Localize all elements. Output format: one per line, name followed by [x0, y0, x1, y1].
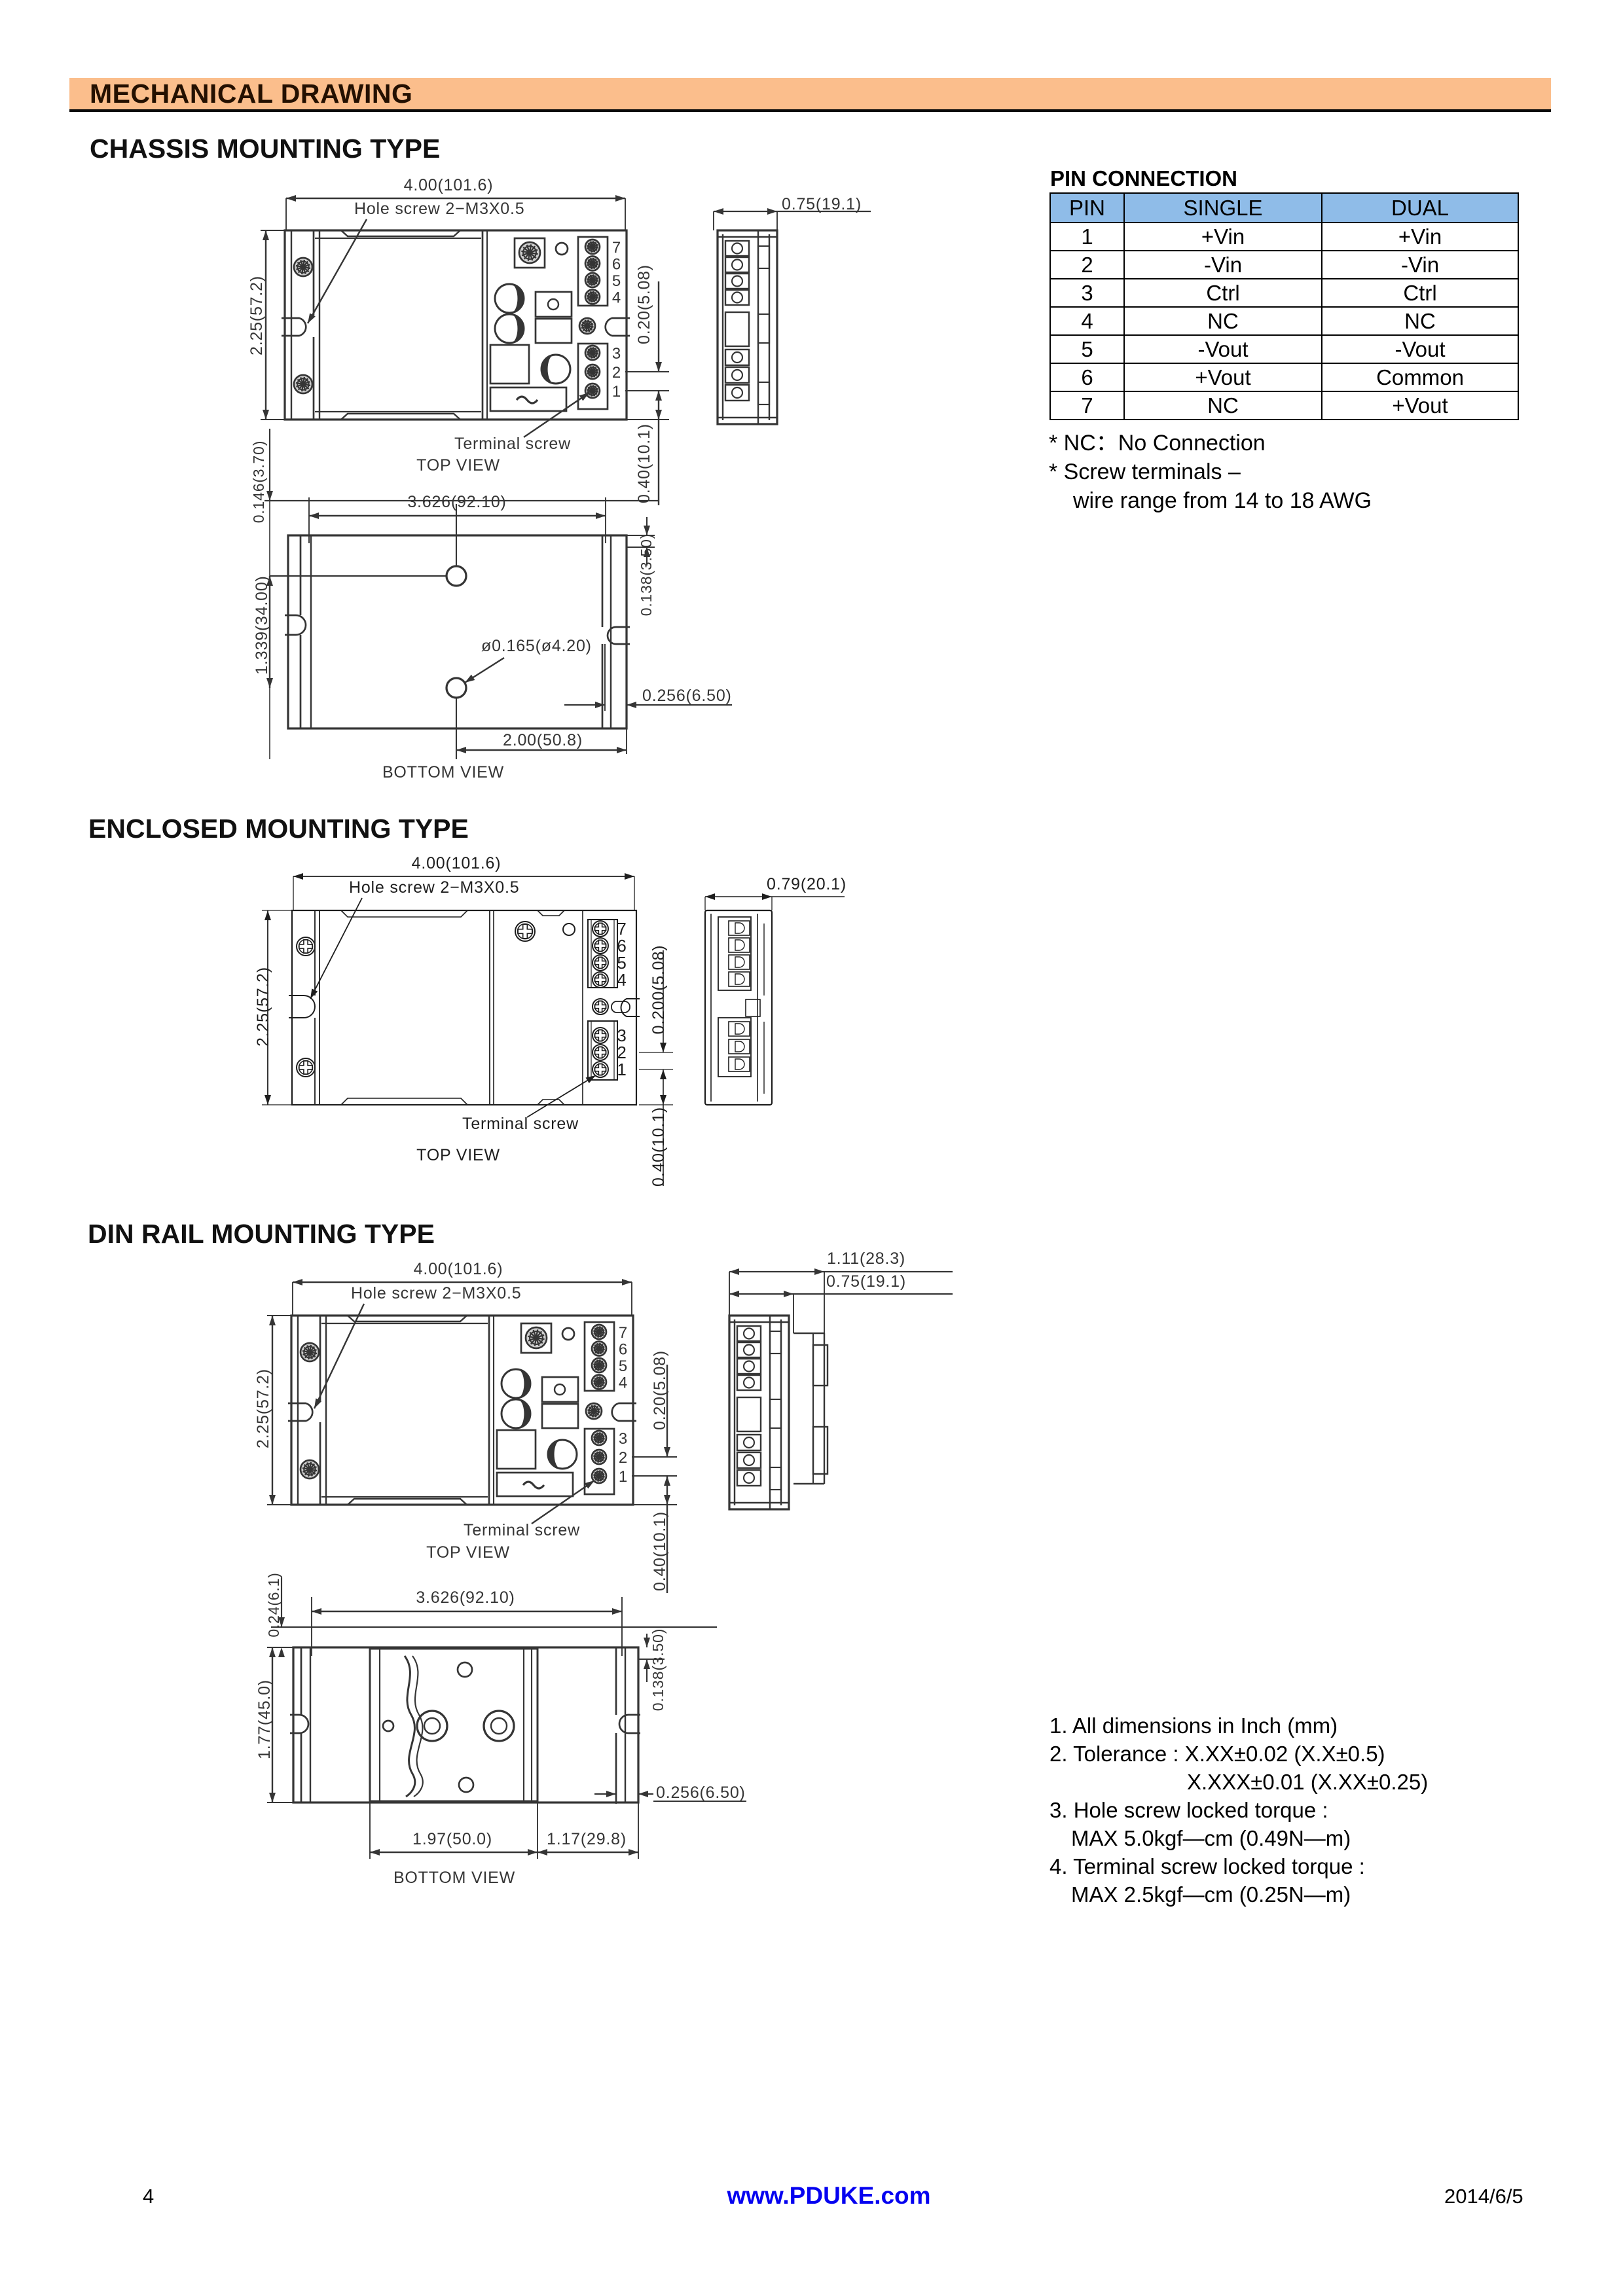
- svg-text:0.24(6.1): 0.24(6.1): [265, 1572, 282, 1637]
- svg-text:1.17(29.8): 1.17(29.8): [547, 1830, 627, 1848]
- svg-text:1: 1: [612, 383, 621, 401]
- svg-text:BOTTOM VIEW: BOTTOM VIEW: [382, 763, 504, 781]
- svg-text:6: 6: [612, 256, 621, 274]
- svg-text:TOP VIEW: TOP VIEW: [416, 456, 500, 475]
- svg-text:2.25(57.2): 2.25(57.2): [247, 276, 266, 355]
- svg-text:0.138(3.50): 0.138(3.50): [649, 1628, 666, 1711]
- svg-text:7: 7: [619, 1324, 628, 1342]
- svg-text:Terminal screw: Terminal screw: [462, 1115, 579, 1133]
- svg-text:1: 1: [619, 1468, 628, 1486]
- svg-text:5: 5: [612, 272, 621, 290]
- svg-text:1: 1: [617, 1060, 627, 1079]
- svg-text:3: 3: [619, 1430, 628, 1448]
- svg-text:ø0.165(ø4.20): ø0.165(ø4.20): [481, 637, 592, 655]
- svg-text:1.339(34.00): 1.339(34.00): [253, 575, 271, 674]
- svg-text:4: 4: [619, 1374, 628, 1392]
- svg-text:2.25(57.2): 2.25(57.2): [254, 967, 272, 1047]
- svg-text:BOTTOM VIEW: BOTTOM VIEW: [393, 1869, 515, 1887]
- svg-text:Hole screw 2−M3X0.5: Hole screw 2−M3X0.5: [349, 878, 519, 897]
- svg-text:3.626(92.10): 3.626(92.10): [407, 493, 506, 511]
- svg-text:4: 4: [617, 970, 627, 990]
- svg-text:0.256(6.50): 0.256(6.50): [642, 687, 732, 705]
- svg-text:3: 3: [612, 345, 621, 363]
- svg-text:0.40(10.1): 0.40(10.1): [649, 1107, 668, 1187]
- svg-text:6: 6: [619, 1341, 628, 1359]
- svg-text:4.00(101.6): 4.00(101.6): [404, 176, 494, 194]
- svg-text:0.40(10.1): 0.40(10.1): [635, 423, 653, 503]
- svg-text:0.20(5.08): 0.20(5.08): [635, 264, 653, 344]
- svg-text:4.00(101.6): 4.00(101.6): [414, 1260, 503, 1278]
- svg-text:Hole screw 2−M3X0.5: Hole screw 2−M3X0.5: [354, 200, 524, 218]
- svg-text:7: 7: [612, 239, 621, 257]
- svg-text:0.75(19.1): 0.75(19.1): [782, 195, 862, 213]
- svg-text:0.146(3.70): 0.146(3.70): [250, 440, 267, 523]
- svg-text:0.256(6.50): 0.256(6.50): [656, 1784, 746, 1802]
- svg-text:1.77(45.0): 1.77(45.0): [255, 1679, 274, 1759]
- svg-text:Terminal screw: Terminal screw: [454, 435, 571, 453]
- svg-text:4: 4: [612, 289, 621, 307]
- svg-text:Hole screw 2−M3X0.5: Hole screw 2−M3X0.5: [351, 1284, 521, 1302]
- svg-text:0.138(3.50): 0.138(3.50): [638, 533, 655, 616]
- svg-text:2: 2: [619, 1449, 628, 1467]
- svg-text:0.75(19.1): 0.75(19.1): [826, 1272, 906, 1291]
- svg-text:2.00(50.8): 2.00(50.8): [503, 731, 583, 749]
- svg-text:4.00(101.6): 4.00(101.6): [412, 854, 501, 872]
- svg-text:0.200(5.08): 0.200(5.08): [649, 945, 668, 1035]
- svg-text:0.79(20.1): 0.79(20.1): [767, 875, 847, 893]
- svg-text:5: 5: [619, 1357, 628, 1375]
- svg-text:2.25(57.2): 2.25(57.2): [254, 1369, 272, 1448]
- svg-text:3.626(92.10): 3.626(92.10): [416, 1588, 515, 1607]
- svg-text:TOP VIEW: TOP VIEW: [416, 1146, 500, 1164]
- svg-text:TOP VIEW: TOP VIEW: [426, 1543, 510, 1562]
- svg-text:2: 2: [612, 364, 621, 382]
- svg-text:1.97(50.0): 1.97(50.0): [412, 1830, 492, 1848]
- svg-text:Terminal screw: Terminal screw: [464, 1521, 580, 1539]
- svg-text:1.11(28.3): 1.11(28.3): [827, 1249, 905, 1268]
